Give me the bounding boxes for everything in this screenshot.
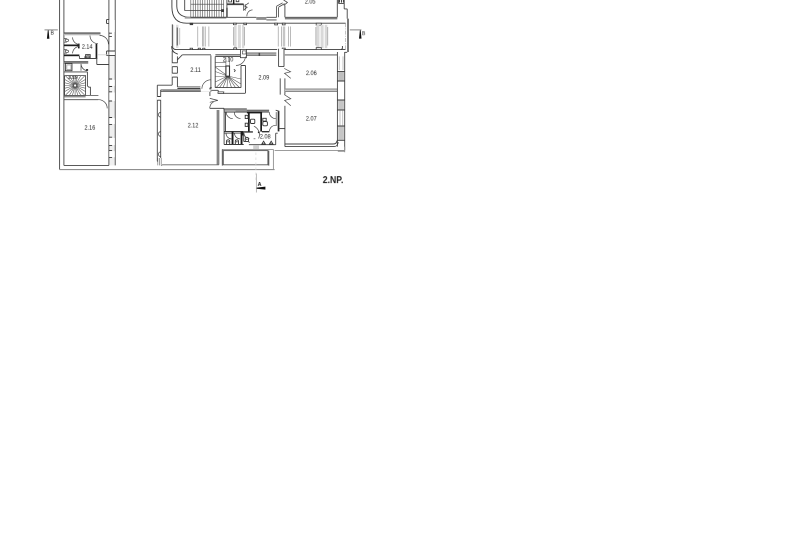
svg-text:2.NP.: 2.NP. xyxy=(323,174,344,186)
svg-text:A: A xyxy=(258,182,262,188)
svg-text:2.12: 2.12 xyxy=(188,122,199,129)
svg-text:2.07: 2.07 xyxy=(306,115,317,122)
svg-text:2.05: 2.05 xyxy=(305,0,316,6)
svg-text:2.11: 2.11 xyxy=(190,67,201,74)
svg-text:2.16: 2.16 xyxy=(84,125,95,132)
svg-text:2.08: 2.08 xyxy=(260,133,271,140)
svg-text:2.15: 2.15 xyxy=(68,75,77,81)
svg-text:2.14: 2.14 xyxy=(82,44,93,51)
svg-text:2.09: 2.09 xyxy=(258,74,269,81)
svg-text:2.10: 2.10 xyxy=(223,56,234,63)
svg-text:2.06: 2.06 xyxy=(306,70,317,77)
